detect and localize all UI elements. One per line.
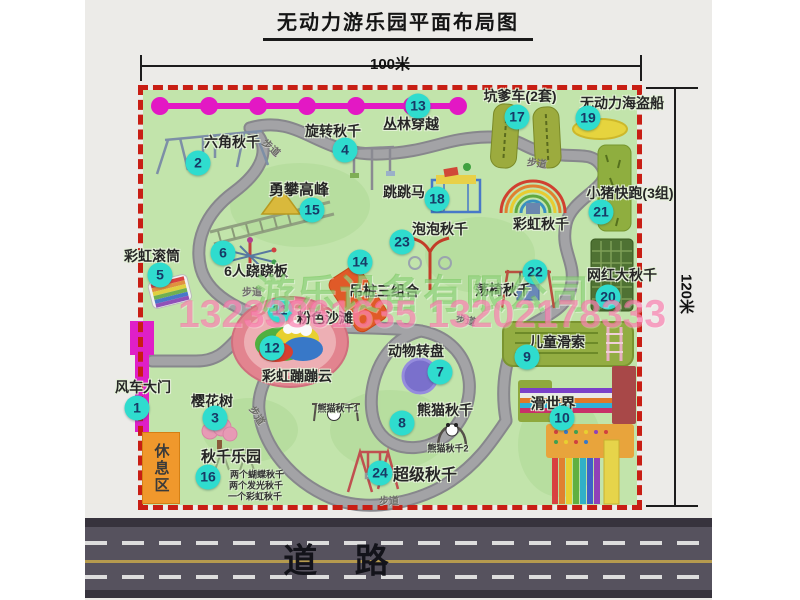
watermark-phone: 13233861635 13202178333 xyxy=(178,293,666,337)
dimension-tick xyxy=(140,55,142,81)
road-label: 道 路 xyxy=(283,534,402,583)
dimension-tick xyxy=(646,87,698,89)
rest-area-label: 休息区 xyxy=(151,443,172,494)
rest-area: 休息区 xyxy=(142,432,180,504)
width-dimension-label: 100米 xyxy=(370,53,410,74)
dimension-tick xyxy=(646,505,698,507)
page-title: 无动力游乐园平面布局图 xyxy=(263,6,533,41)
dimension-tick xyxy=(640,55,642,81)
height-dimension-label: 120米 xyxy=(677,274,698,314)
road: 道 路 xyxy=(85,518,712,598)
screenshot-root: 无动力游乐园平面布局图 100米 120米 xyxy=(0,0,800,600)
